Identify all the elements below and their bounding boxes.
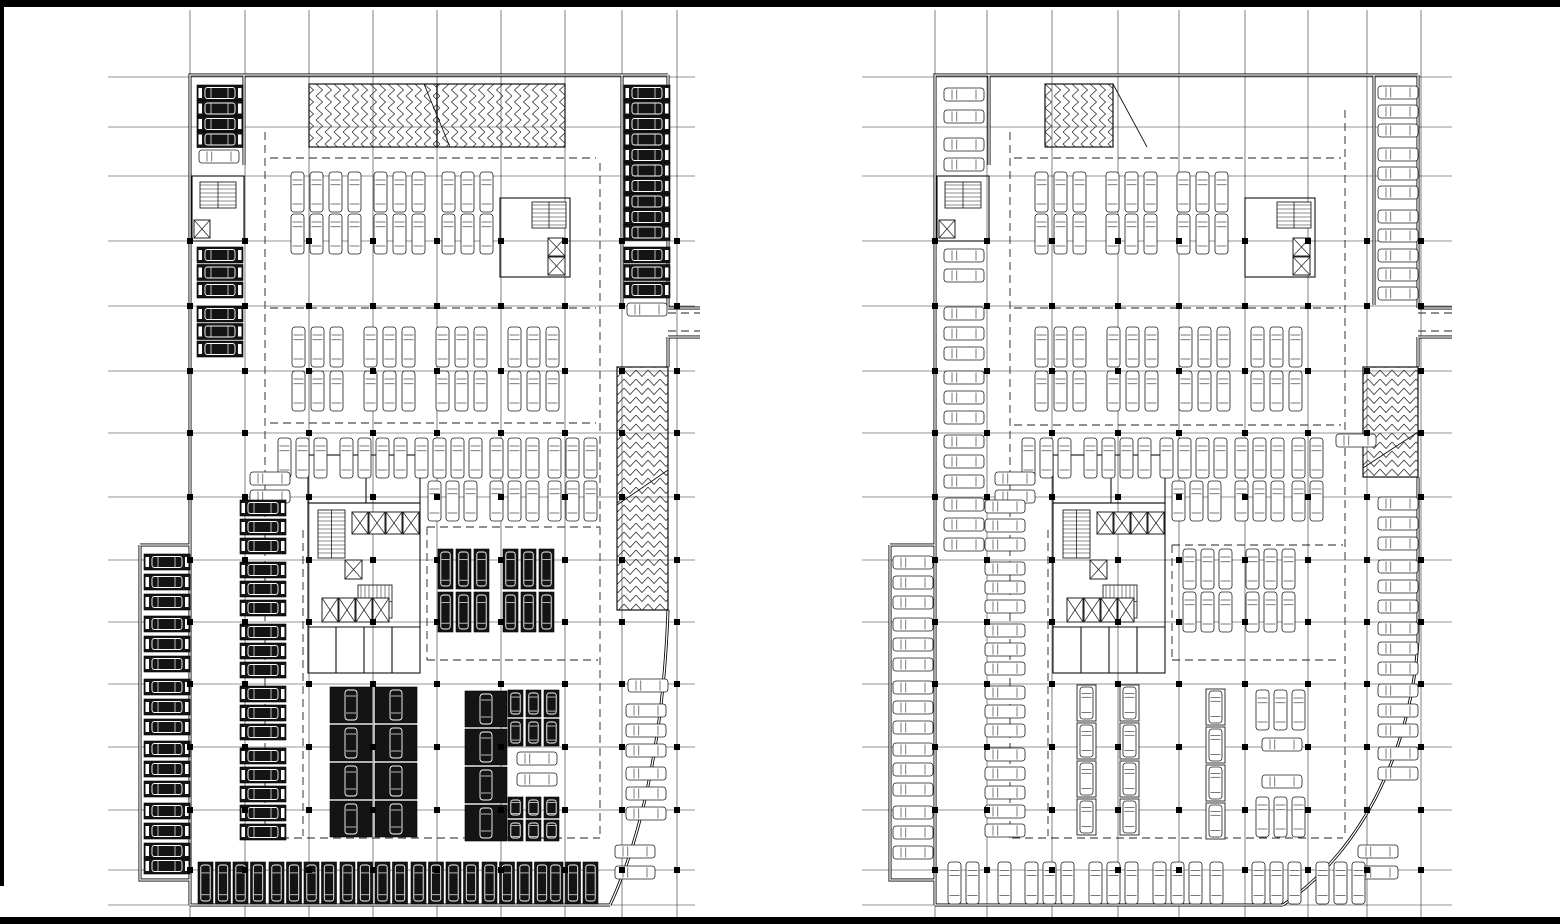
parking-row — [508, 327, 559, 367]
parking-row — [240, 500, 286, 554]
parking-row — [548, 438, 597, 478]
parking-row — [1378, 497, 1418, 550]
parking-row — [374, 214, 425, 254]
parking-row — [1035, 214, 1086, 254]
parking-row — [1107, 371, 1158, 411]
parking-row — [340, 438, 407, 478]
elevator-icon — [322, 598, 338, 622]
parking-row — [1252, 862, 1301, 904]
stair-icon — [318, 510, 345, 558]
parking-stalls — [893, 86, 1418, 904]
elevator-icon — [1148, 512, 1164, 534]
parking-row — [1256, 797, 1305, 837]
parking-row — [1378, 249, 1418, 300]
elevator-icon — [352, 512, 368, 534]
parking-row — [250, 472, 290, 503]
elevator-icon — [1097, 512, 1113, 534]
parking-row — [1106, 172, 1157, 212]
parking-row — [628, 679, 668, 692]
parking-row — [1077, 685, 1096, 835]
parking-row — [944, 371, 984, 424]
parking-row — [1106, 214, 1157, 254]
parking-row — [144, 858, 190, 874]
elevator-icon — [1101, 598, 1117, 622]
parking-row — [1246, 592, 1295, 632]
left-basement-parking-plan — [108, 10, 700, 917]
parking-row — [1035, 371, 1086, 411]
parking-row — [503, 592, 554, 632]
parking-row — [291, 214, 361, 254]
parking-row — [291, 172, 361, 212]
elevator-icon — [1131, 512, 1147, 534]
parking-row — [1179, 371, 1230, 411]
parking-row — [944, 435, 984, 488]
parking-row — [240, 686, 286, 740]
elevator-icon — [939, 220, 955, 238]
parking-row — [627, 303, 667, 316]
parking-row — [330, 687, 372, 837]
parking-row — [269, 862, 337, 904]
parking-row — [1262, 738, 1302, 751]
elevator-icon — [1067, 598, 1083, 622]
parking-row — [998, 862, 1011, 904]
parking-row — [1235, 438, 1284, 478]
parking-row — [508, 797, 559, 818]
elevator-icon — [1293, 257, 1310, 275]
parking-row — [1235, 481, 1284, 521]
parking-row — [985, 562, 1025, 613]
parking-row — [626, 767, 666, 820]
parking-row — [1378, 560, 1418, 613]
parking-row — [428, 481, 477, 521]
parking-row — [1256, 690, 1305, 730]
parking-row — [240, 748, 286, 802]
parking-row — [144, 741, 190, 797]
parking-row — [436, 327, 487, 367]
parking-floor-plan-drawing — [0, 0, 1560, 924]
parking-row — [1035, 327, 1086, 367]
elevator-icon — [548, 257, 565, 275]
parking-row — [490, 481, 539, 521]
parking-row — [199, 150, 239, 163]
parking-row — [198, 862, 266, 904]
parking-row — [1262, 775, 1302, 788]
parking-row — [1120, 685, 1139, 835]
parking-row — [1378, 210, 1418, 242]
parking-row — [144, 616, 190, 672]
parking-row — [1292, 481, 1323, 521]
parking-row — [197, 306, 243, 357]
parking-row — [411, 862, 479, 904]
parking-row — [1251, 371, 1302, 411]
parking-row — [1179, 327, 1230, 367]
parking-row — [1035, 172, 1086, 212]
parking-row — [508, 371, 559, 411]
parking-row — [364, 327, 415, 367]
parking-row — [1177, 172, 1228, 212]
parking-row — [893, 681, 933, 734]
parking-row — [948, 862, 979, 904]
stair-icon — [945, 182, 981, 208]
parking-row — [144, 554, 190, 610]
parking-row — [944, 498, 984, 551]
stair-icon — [532, 202, 566, 228]
elevator-icon — [373, 598, 389, 622]
elevator-icon — [339, 598, 355, 622]
parking-row — [1378, 622, 1418, 675]
parking-row — [438, 592, 489, 632]
parking-row — [508, 719, 559, 746]
parking-row — [240, 562, 286, 616]
parking-row — [374, 172, 425, 212]
elevator-icon — [194, 220, 210, 238]
parking-row — [1089, 862, 1138, 904]
parking-row — [1378, 148, 1418, 199]
parking-row — [436, 371, 487, 411]
parking-row — [944, 307, 984, 360]
parking-row — [442, 172, 493, 212]
parking-row — [490, 438, 539, 478]
parking-row — [985, 624, 1025, 675]
parking-row — [1246, 549, 1295, 589]
parking-row — [1172, 481, 1221, 521]
parking-row — [364, 371, 415, 411]
parking-row — [985, 748, 1025, 799]
parking-row — [893, 806, 933, 859]
parking-row — [1084, 438, 1151, 478]
parking-row — [985, 805, 1025, 837]
elevator-icon — [1084, 598, 1100, 622]
parking-row — [1292, 438, 1323, 478]
parking-row — [415, 438, 482, 478]
parking-row — [482, 862, 550, 904]
parking-row — [144, 803, 190, 859]
parking-row — [144, 679, 190, 735]
parking-row — [1378, 86, 1418, 137]
parking-row — [1107, 327, 1158, 367]
parking-row — [995, 472, 1035, 503]
right-basement-parking-plan — [862, 10, 1452, 917]
parking-row — [944, 138, 984, 171]
parking-row — [292, 371, 343, 411]
parking-row — [985, 500, 1025, 551]
elevator-icon — [1118, 598, 1134, 622]
elevator-icon — [369, 512, 385, 534]
stair-icon — [200, 182, 236, 208]
elevator-icon — [356, 598, 372, 622]
parking-row — [517, 752, 557, 786]
parking-row — [1206, 689, 1225, 839]
parking-row — [985, 686, 1025, 737]
elevator-icon — [1114, 512, 1130, 534]
parking-row — [375, 687, 417, 837]
parking-row — [438, 549, 489, 589]
parking-row — [292, 327, 343, 367]
stair-icon — [1063, 510, 1090, 558]
parking-row — [615, 845, 655, 879]
parking-row — [1177, 214, 1228, 254]
parking-row — [1183, 549, 1232, 589]
parking-row — [944, 249, 984, 282]
parking-row — [197, 247, 243, 298]
parking-row — [508, 820, 559, 841]
parking-row — [893, 743, 933, 796]
parking-row — [548, 481, 597, 521]
cad-sheet — [0, 0, 1560, 924]
parking-row — [442, 214, 493, 254]
parking-row — [1378, 747, 1418, 780]
parking-row — [624, 247, 670, 298]
parking-row — [197, 85, 243, 148]
elevator-icon — [1090, 560, 1107, 579]
parking-row — [893, 618, 933, 671]
ramp-hatched-areas — [1045, 84, 1418, 477]
parking-row — [1210, 862, 1223, 904]
elevator-icon — [345, 560, 362, 579]
parking-row — [624, 85, 670, 241]
parking-row — [1160, 438, 1227, 478]
parking-row — [893, 556, 933, 609]
parking-row — [548, 862, 598, 904]
parking-row — [240, 624, 286, 678]
parking-row — [1378, 684, 1418, 737]
parking-row — [508, 690, 559, 717]
parking-row — [944, 88, 984, 123]
parking-row — [1183, 592, 1232, 632]
parking-row — [1316, 862, 1365, 904]
stair-icon — [1277, 202, 1311, 228]
elevator-icon — [403, 512, 419, 534]
parking-row — [503, 549, 554, 589]
parking-row — [626, 704, 666, 757]
elevator-icon — [386, 512, 402, 534]
parking-row — [1251, 327, 1302, 367]
